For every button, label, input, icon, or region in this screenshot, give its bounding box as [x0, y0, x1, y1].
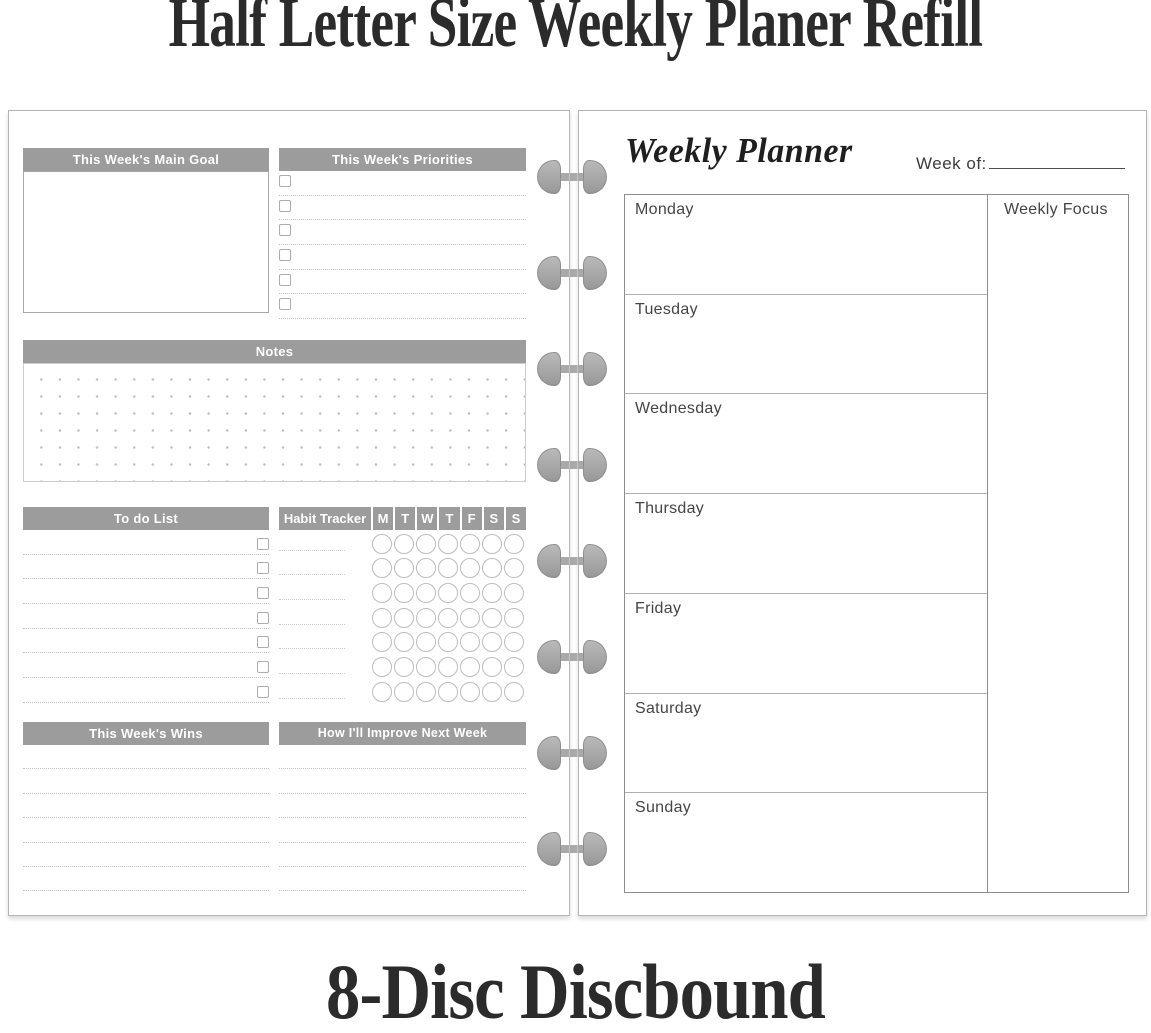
priority-row	[279, 245, 526, 270]
habit-day-monday: M	[373, 507, 393, 530]
week-of-label: Week of:	[916, 154, 987, 173]
habit-circle-icon	[372, 682, 392, 702]
habit-circle-icon	[416, 583, 436, 603]
disc-right-cap	[583, 640, 607, 674]
binding-disc-icon	[537, 256, 607, 290]
main-goal-header: This Week's Main Goal	[23, 148, 269, 171]
todo-row	[23, 678, 269, 703]
checkbox-icon	[279, 249, 291, 261]
disc-right-cap	[583, 352, 607, 386]
habit-circle-icon	[372, 608, 392, 628]
priority-row	[279, 270, 526, 295]
todo-list	[23, 530, 269, 703]
priority-row	[279, 220, 526, 245]
habit-circle-icon	[372, 558, 392, 578]
improve-lines	[279, 745, 526, 891]
planner-right-page: Weekly Planner Week of: Monday Tuesday W…	[578, 110, 1147, 916]
habit-circle-icon	[394, 534, 414, 554]
habit-row	[279, 579, 526, 604]
habit-name-line	[279, 698, 345, 699]
binding-disc-icon	[537, 832, 607, 866]
habit-circle-icon	[482, 632, 502, 652]
habit-circle-icon	[394, 632, 414, 652]
checkbox-icon	[279, 200, 291, 212]
habit-row	[279, 530, 526, 555]
ruled-line	[23, 843, 269, 867]
todo-row	[23, 555, 269, 580]
notes-header: Notes	[23, 340, 526, 363]
disc-left-cap	[537, 160, 561, 194]
disc-binding	[537, 0, 607, 1033]
todo-row	[23, 653, 269, 678]
habit-circle-icon	[504, 558, 524, 578]
day-column: Monday Tuesday Wednesday Thursday Friday…	[625, 195, 988, 892]
habit-circle-icon	[460, 632, 480, 652]
checkbox-icon	[257, 587, 269, 599]
ruled-line	[279, 867, 526, 891]
priority-row	[279, 171, 526, 196]
day-cell-tuesday: Tuesday	[625, 295, 987, 395]
habit-circle-icon	[460, 534, 480, 554]
day-cell-thursday: Thursday	[625, 494, 987, 594]
habit-circle-icon	[504, 583, 524, 603]
habit-circle-icon	[504, 682, 524, 702]
habit-circle-icon	[438, 632, 458, 652]
checkbox-icon	[279, 224, 291, 236]
habit-circle-icon	[482, 534, 502, 554]
habit-day-tuesday: T	[395, 507, 415, 530]
ruled-line	[279, 769, 526, 793]
checkbox-icon	[257, 562, 269, 574]
habit-circle-icon	[504, 608, 524, 628]
habit-circle-icon	[394, 608, 414, 628]
habit-circle-icon	[482, 657, 502, 677]
disc-right-cap	[583, 448, 607, 482]
habit-circle-icon	[438, 682, 458, 702]
habit-circle-icon	[504, 632, 524, 652]
habit-circle-icon	[416, 657, 436, 677]
checkbox-icon	[279, 175, 291, 187]
ruled-line	[23, 818, 269, 842]
day-cell-wednesday: Wednesday	[625, 394, 987, 494]
priority-row	[279, 196, 526, 221]
weekly-planner-title: Weekly Planner	[625, 133, 853, 168]
checkbox-icon	[257, 612, 269, 624]
disc-right-cap	[583, 736, 607, 770]
habit-circle-icon	[482, 682, 502, 702]
disc-left-cap	[537, 832, 561, 866]
weekly-focus-cell: Weekly Focus	[988, 195, 1128, 892]
checkbox-icon	[257, 686, 269, 698]
habit-circle-icon	[460, 608, 480, 628]
disc-left-cap	[537, 736, 561, 770]
priorities-list	[279, 171, 526, 319]
habit-circle-icon	[438, 583, 458, 603]
disc-right-cap	[583, 160, 607, 194]
habit-day-wednesday: W	[417, 507, 437, 530]
disc-left-cap	[537, 256, 561, 290]
habit-name-line	[279, 648, 345, 649]
wins-header: This Week's Wins	[23, 722, 269, 745]
habit-day-thursday: T	[439, 507, 459, 530]
habit-circles	[372, 657, 524, 677]
ruled-line	[279, 794, 526, 818]
habit-circle-icon	[438, 534, 458, 554]
habit-circle-icon	[416, 608, 436, 628]
habit-circle-icon	[482, 583, 502, 603]
habit-row	[279, 555, 526, 580]
habit-circle-icon	[438, 657, 458, 677]
priorities-header: This Week's Priorities	[279, 148, 526, 171]
habit-circle-icon	[416, 632, 436, 652]
ruled-line	[23, 867, 269, 891]
habit-circles	[372, 608, 524, 628]
habit-name-line	[279, 574, 345, 575]
habit-tracker-header: Habit Tracker	[279, 507, 371, 530]
habit-circle-icon	[416, 534, 436, 554]
habit-circle-icon	[394, 682, 414, 702]
habit-circle-icon	[482, 558, 502, 578]
habit-circle-icon	[504, 534, 524, 554]
todo-row	[23, 604, 269, 629]
habit-circle-icon	[394, 583, 414, 603]
week-of-blank-line	[989, 168, 1125, 169]
day-cell-sunday: Sunday	[625, 793, 987, 892]
habit-row	[279, 653, 526, 678]
habit-name-line	[279, 624, 345, 625]
habit-circle-icon	[504, 657, 524, 677]
wins-lines	[23, 745, 269, 891]
habit-circle-icon	[394, 558, 414, 578]
binding-disc-icon	[537, 736, 607, 770]
disc-left-cap	[537, 640, 561, 674]
habit-circle-icon	[438, 558, 458, 578]
disc-left-cap	[537, 544, 561, 578]
day-cell-friday: Friday	[625, 594, 987, 694]
priority-row	[279, 294, 526, 319]
habit-circle-icon	[460, 558, 480, 578]
habit-circles	[372, 558, 524, 578]
improve-header: How I'll Improve Next Week	[279, 722, 526, 745]
habit-day-friday: F	[462, 507, 482, 530]
ruled-line	[23, 745, 269, 769]
disc-left-cap	[537, 448, 561, 482]
disc-right-cap	[583, 256, 607, 290]
habit-row	[279, 678, 526, 703]
checkbox-icon	[257, 636, 269, 648]
habit-row	[279, 604, 526, 629]
disc-right-cap	[583, 832, 607, 866]
notes-dot-grid	[23, 363, 526, 482]
disc-left-cap	[537, 352, 561, 386]
ruled-line	[279, 818, 526, 842]
checkbox-icon	[257, 538, 269, 550]
week-table: Monday Tuesday Wednesday Thursday Friday…	[624, 194, 1129, 893]
habit-row	[279, 629, 526, 654]
binding-disc-icon	[537, 448, 607, 482]
habit-circles	[372, 632, 524, 652]
ruled-line	[23, 794, 269, 818]
todo-row	[23, 530, 269, 555]
checkbox-icon	[279, 274, 291, 286]
binding-disc-icon	[537, 544, 607, 578]
habit-circle-icon	[482, 608, 502, 628]
habit-circle-icon	[416, 682, 436, 702]
habit-circle-icon	[438, 608, 458, 628]
habit-day-sunday: S	[506, 507, 526, 530]
ruled-line	[279, 745, 526, 769]
checkbox-icon	[257, 661, 269, 673]
day-cell-saturday: Saturday	[625, 694, 987, 794]
disc-right-cap	[583, 544, 607, 578]
habit-circle-icon	[416, 558, 436, 578]
habit-circle-icon	[460, 682, 480, 702]
ruled-line	[279, 843, 526, 867]
day-cell-monday: Monday	[625, 195, 987, 295]
todo-header: To do List	[23, 507, 269, 530]
habit-name-line	[279, 599, 345, 600]
habit-circles	[372, 534, 524, 554]
habit-circle-icon	[372, 583, 392, 603]
habit-circle-icon	[372, 534, 392, 554]
ruled-line	[23, 769, 269, 793]
habit-circle-icon	[372, 632, 392, 652]
binding-disc-icon	[537, 160, 607, 194]
habit-name-line	[279, 673, 345, 674]
main-goal-writing-box	[23, 171, 269, 313]
binding-disc-icon	[537, 640, 607, 674]
habit-tracker-grid	[279, 530, 526, 703]
todo-row	[23, 579, 269, 604]
habit-circles	[372, 583, 524, 603]
habit-circle-icon	[394, 657, 414, 677]
habit-day-saturday: S	[484, 507, 504, 530]
binding-disc-icon	[537, 352, 607, 386]
habit-name-line	[279, 550, 345, 551]
habit-circle-icon	[460, 657, 480, 677]
habit-circle-icon	[460, 583, 480, 603]
planner-left-page: This Week's Main Goal This Week's Priori…	[8, 110, 570, 916]
checkbox-icon	[279, 298, 291, 310]
habit-tracker-header-row: Habit Tracker M T W T F S S	[279, 507, 526, 530]
todo-row	[23, 629, 269, 654]
week-of-field: Week of:	[916, 154, 1125, 174]
habit-circle-icon	[372, 657, 392, 677]
habit-circles	[372, 682, 524, 702]
